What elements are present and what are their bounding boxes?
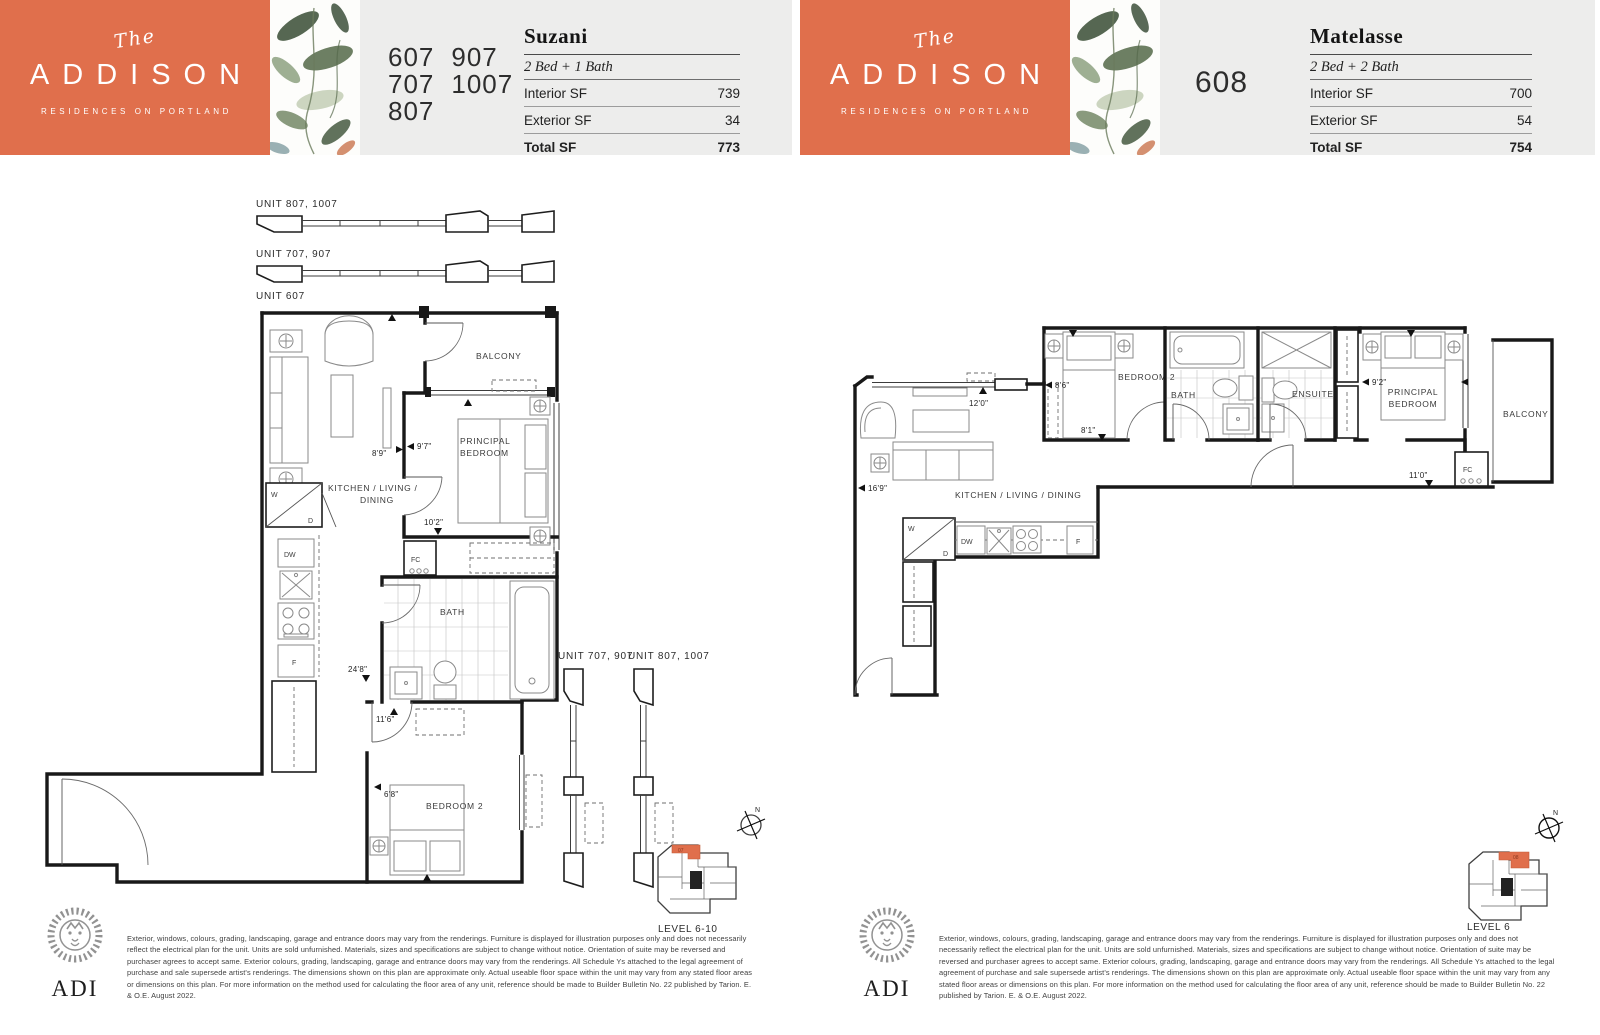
strip-label-807-1007: UNIT 807, 1007 (256, 199, 338, 210)
side-window-strip (564, 669, 603, 887)
bathroom: BATH 24'8" 11'6" (348, 577, 557, 724)
balcony-area: BALCONY (388, 313, 555, 406)
spec-row-exterior: Exterior SF 34 (524, 107, 740, 134)
spec-label: Exterior SF (1310, 113, 1378, 128)
washer-label: W (271, 492, 278, 499)
fridge-label: F (292, 660, 296, 667)
addison-logo: The ADDISON RESIDENCES ON PORTLAND (800, 0, 1070, 155)
dim-12-0: 12'0" (969, 399, 988, 408)
spec-row-exterior: Exterior SF 54 (1310, 107, 1532, 134)
entry-door (855, 658, 892, 695)
balcony-area: BALCONY (1493, 340, 1552, 482)
kitchen-living-label-2: DINING (360, 495, 394, 505)
dim-24-8: 24'8" (348, 665, 367, 674)
header-matelasse: The ADDISON RESIDENCES ON PORTLAND 608 M… (800, 0, 1595, 155)
dryer-label: D (943, 551, 948, 558)
spec-row-total: Total SF 773 (524, 134, 740, 160)
living-room-furniture: 12'0" 16'9" (858, 387, 993, 493)
spec-value: 739 (717, 86, 740, 101)
adi-name: ADI (43, 976, 107, 1002)
compass-icon: N (737, 807, 765, 839)
dim-8-1: 8'1" (1081, 426, 1095, 435)
bedroom-2: BEDROOM 2 8'6" 8'1" (1044, 330, 1175, 441)
header-suzani: The ADDISON RESIDENCES ON PORTLAND 607 (0, 0, 792, 155)
spec-label: Exterior SF (524, 113, 592, 128)
unit-numbers-suzani: 607 707 807 907 1007 (388, 44, 513, 155)
kitchen-appliances: DW F (272, 535, 319, 772)
footer-left: ADI Exterior, windows, colours, grading,… (43, 905, 755, 1002)
living-room-furniture (270, 316, 391, 490)
adi-name: ADI (855, 976, 919, 1002)
plan-name: Suzani (524, 24, 740, 49)
spec-label: Interior SF (524, 86, 587, 101)
principal-bedroom-label-1: PRINCIPAL (1388, 387, 1439, 397)
kitchen-living-label-1: KITCHEN / LIVING / (328, 483, 418, 493)
unit-607-label: UNIT 607 (256, 291, 305, 302)
strip-label-707-907: UNIT 707, 907 (256, 249, 331, 260)
spec-value: 754 (1509, 140, 1532, 155)
side-strip-label-707-907: UNIT 707, 907 (558, 651, 633, 662)
kitchen-living-dining-label: KITCHEN / LIVING / DINING (955, 490, 1082, 500)
spec-label: Total SF (524, 140, 576, 155)
plan-info-matelasse: Matelasse 2 Bed + 2 Bath Interior SF 700… (1310, 0, 1532, 155)
spec-value: 54 (1517, 113, 1532, 128)
botanical-leaves-graphic (270, 0, 360, 155)
bedroom-2-label: BEDROOM 2 (426, 801, 483, 811)
principal-bedroom-label-1: PRINCIPAL (460, 436, 511, 446)
botanical-artwork (270, 0, 360, 155)
keyplan-level-6-10: 07 (658, 845, 736, 913)
floorplan-suzani: UNIT 807, 1007 UNIT 707, 907 UNIT 607 (30, 175, 790, 935)
adi-logo: ADI (43, 905, 107, 1002)
unit-numbers-col1: 607 707 807 (388, 44, 434, 155)
dim-11-6: 11'6" (376, 715, 395, 724)
unit-number: 707 (388, 71, 434, 98)
dim-10-2: 10'2" (424, 518, 443, 527)
adi-lion-medallion (45, 905, 105, 969)
fc-label: FC (1463, 467, 1472, 474)
spec-value: 773 (717, 140, 740, 155)
footer-right: ADI Exterior, windows, colours, grading,… (855, 905, 1555, 1002)
plan-name: Matelasse (1310, 24, 1532, 49)
plan-type: 2 Bed + 2 Bath (1310, 55, 1532, 79)
compass-north-label: N (1553, 810, 1558, 817)
plan-info-suzani: Suzani 2 Bed + 1 Bath Interior SF 739 Ex… (524, 0, 740, 155)
dim-6-8: 6'8" (384, 790, 398, 799)
compass-icon: N (1535, 810, 1563, 842)
spec-value: 700 (1509, 86, 1532, 101)
ensuite-label: ENSUITE (1292, 389, 1334, 399)
balcony-label: BALCONY (1503, 409, 1549, 419)
washer-label: W (908, 526, 915, 533)
unit-number: 1007 (451, 71, 513, 98)
spec-value: 34 (725, 113, 740, 128)
dim-9-2: 9'2" (1372, 378, 1386, 387)
botanical-artwork (1070, 0, 1160, 155)
balcony-strip-diagram (257, 211, 554, 232)
side-strip-label-807-1007: UNIT 807, 1007 (628, 651, 710, 662)
bath-label: BATH (440, 607, 465, 617)
brand-tagline: RESIDENCES ON PORTLAND (0, 107, 270, 116)
spec-row-interior: Interior SF 700 (1310, 80, 1532, 107)
fan-coil-closet: FC (1455, 452, 1488, 486)
unit-number: 807 (388, 98, 434, 125)
bedroom-2: BEDROOM 2 6'8" (367, 702, 542, 882)
entry-door (62, 779, 148, 865)
addison-logo: The ADDISON RESIDENCES ON PORTLAND (0, 0, 270, 155)
fan-coil-closet: FC (404, 541, 436, 575)
bathroom: BATH (1165, 328, 1258, 440)
principal-bedroom-label-2: BEDROOM (460, 448, 509, 458)
dim-8-9: 8'9" (372, 449, 386, 458)
dim-9-7: 9'7" (417, 442, 431, 451)
floorplan-matelasse: 12'0" 16'9" KITCHEN / LIVING / DINING W … (815, 290, 1585, 940)
dim-11-0: 11'0" (1409, 471, 1428, 480)
unit-number: 607 (388, 44, 434, 71)
spec-label: Interior SF (1310, 86, 1373, 101)
unit-number: 907 (451, 44, 513, 71)
adi-lion-medallion (857, 905, 917, 969)
unit-number-608: 608 (1195, 66, 1248, 155)
floorplan-sheet: The ADDISON RESIDENCES ON PORTLAND 607 (0, 0, 1600, 1035)
unit-numbers-col2: 907 1007 (451, 44, 513, 155)
keyplan-unit-07-label: 07 (678, 848, 684, 854)
botanical-leaves-graphic (1070, 0, 1160, 155)
dim-8-6: 8'6" (1055, 381, 1069, 390)
dishwasher-label: DW (284, 552, 296, 559)
spec-label: Total SF (1310, 140, 1362, 155)
brand-tagline: RESIDENCES ON PORTLAND (800, 107, 1070, 116)
disclaimer-text: Exterior, windows, colours, grading, lan… (127, 905, 755, 1002)
dryer-label: D (308, 518, 313, 525)
disclaimer-text: Exterior, windows, colours, grading, lan… (939, 905, 1555, 1002)
fc-label: FC (411, 557, 420, 564)
bath-label: BATH (1171, 390, 1196, 400)
kitchen-appliances: W D DW F (903, 518, 1098, 560)
compass-north-label: N (755, 807, 760, 814)
adi-logo: ADI (855, 905, 919, 1002)
bedroom-2-label: BEDROOM 2 (1118, 372, 1175, 382)
spec-row-interior: Interior SF 739 (524, 80, 740, 107)
balcony-label: BALCONY (476, 351, 522, 361)
fridge-label: F (1076, 539, 1080, 546)
laundry-closet: W D (266, 483, 336, 527)
entry-closets (903, 562, 933, 646)
keyplan-unit-08-label: 08 (1513, 855, 1519, 861)
walk-in-closet (1335, 328, 1358, 440)
plan-type: 2 Bed + 1 Bath (524, 55, 740, 79)
dishwasher-label: DW (961, 539, 973, 546)
ensuite-bathroom: ENSUITE (1258, 328, 1335, 440)
principal-bedroom-label-2: BEDROOM (1389, 399, 1438, 409)
spec-row-total: Total SF 754 (1310, 134, 1532, 160)
dim-16-9: 16'9" (868, 484, 887, 493)
